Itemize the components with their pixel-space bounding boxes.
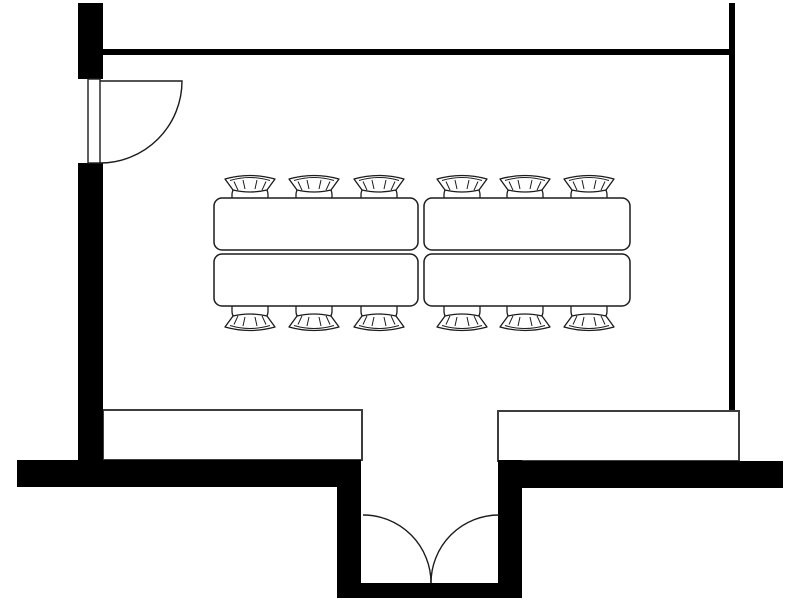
door-swing-arc <box>100 81 182 163</box>
top-wall <box>103 49 734 55</box>
bottom-wall-left <box>17 460 361 487</box>
entry-recess-bottom-wall <box>337 583 522 598</box>
double-door-entrance <box>363 515 499 583</box>
entry-recess-right-wall <box>498 460 522 598</box>
entry-recess-left-wall <box>337 460 361 598</box>
floor-plan-canvas <box>0 0 800 600</box>
double-door-right-swing-arc <box>431 515 499 583</box>
bottom-wall-right <box>498 461 783 488</box>
table-1[interactable] <box>214 198 418 250</box>
floor-plan <box>0 0 800 600</box>
single-door <box>88 79 182 163</box>
door-leaf[interactable] <box>88 79 100 163</box>
left-wall-lower <box>78 163 103 460</box>
table-4[interactable] <box>424 254 630 306</box>
right-wall <box>729 3 735 410</box>
double-door-left-swing-arc <box>363 515 431 583</box>
table-3[interactable] <box>424 198 630 250</box>
left-wall-upper <box>78 3 103 79</box>
tables-group <box>214 198 630 306</box>
counters-group <box>103 410 739 461</box>
counter-right[interactable] <box>498 411 739 461</box>
table-2[interactable] <box>214 254 418 306</box>
counter-left[interactable] <box>103 410 362 460</box>
